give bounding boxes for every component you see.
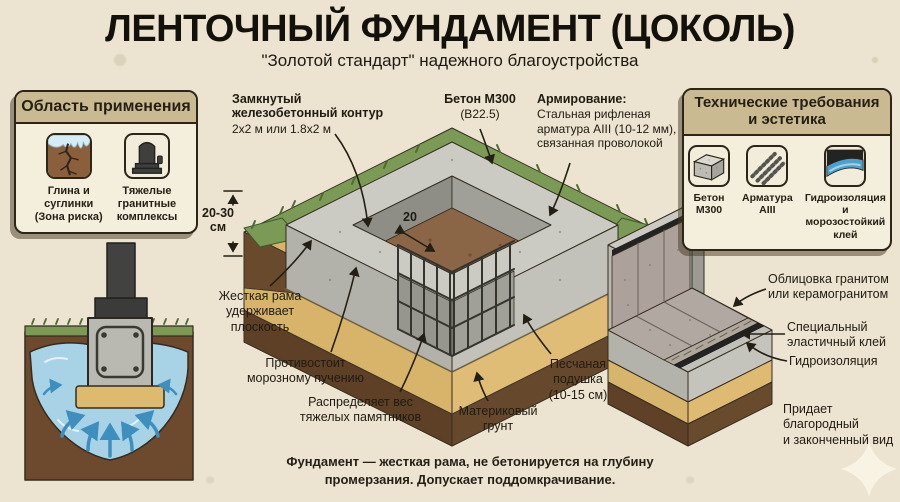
- callout-waterproofing: Гидроизоляция: [789, 354, 899, 369]
- page-title: ЛЕНТОЧНЫЙ ФУНДАМЕНТ (ЦОКОЛЬ): [0, 8, 900, 51]
- panel-item-concrete: Бетон М300: [688, 145, 730, 242]
- callout-reinforcement: Армирование: Стальная рифленая арматура …: [537, 92, 692, 150]
- infographic-strip-foundation: ЛЕНТОЧНЫЙ ФУНДАМЕНТ (ЦОКОЛЬ) "Золотой ст…: [0, 0, 900, 502]
- callout-noble-look: Придает благородный и законченный вид: [783, 402, 900, 448]
- cracked-clay-frost-icon: [46, 133, 92, 179]
- granite-monument-icon: [124, 133, 170, 179]
- rebar-rods-icon: [746, 145, 788, 187]
- panel-item-label: Глина и суглинки (Зона риска): [35, 185, 103, 224]
- concrete-block-icon: [688, 145, 730, 187]
- frost-heave-illustration: [25, 243, 193, 480]
- callout-rigid-frame: Жесткая рама удерживает плоскость: [205, 289, 315, 335]
- application-area-panel: Область применения Глина и суглинки (Зон…: [14, 90, 198, 234]
- panel-item-label: Арматура AIII: [742, 192, 793, 217]
- application-area-panel-body: Глина и суглинки (Зона риска) Тяжелые гр…: [16, 124, 196, 232]
- callout-bedrock: Материковый грунт: [450, 404, 546, 435]
- callout-sand-cushion: Песчаная подушка (10-15 см): [528, 357, 628, 403]
- sparkle-icon: [841, 441, 897, 497]
- callout-frost-resistance: Противостоит морозному пучению: [243, 356, 368, 387]
- technical-requirements-panel-title: Технические требования и эстетика: [684, 90, 890, 136]
- panel-item-granite-monuments: Тяжелые гранитные комплексы: [117, 133, 178, 224]
- callout-contour: Замкнутый железобетонный контур 2х2 м ил…: [232, 92, 392, 136]
- page-subtitle: "Золотой стандарт" надежного благоустрой…: [0, 51, 900, 71]
- callout-weight-distribution: Распределяет вес тяжелых памятников: [298, 395, 423, 426]
- callout-elastic-glue: Специальный эластичный клей: [787, 320, 897, 351]
- panel-item-label: Бетон М300: [693, 192, 724, 217]
- panel-item-label: Гидроизоляция и морозостойкий клей: [805, 192, 886, 242]
- panel-item-rebar: Арматура AIII: [742, 145, 793, 242]
- panel-item-clay-soils: Глина и суглинки (Зона риска): [35, 133, 103, 224]
- panel-item-waterproofing: Гидроизоляция и морозостойкий клей: [805, 145, 886, 242]
- callout-concrete-grade: Бетон М300 (В22.5): [425, 92, 535, 122]
- panel-item-label: Тяжелые гранитные комплексы: [117, 185, 178, 224]
- application-area-panel-title: Область применения: [16, 92, 196, 124]
- technical-requirements-panel-body: Бетон М300 Арматура AI: [684, 136, 890, 250]
- footer-note: Фундамент — жесткая рама, не бетонируетс…: [250, 453, 690, 488]
- waterproofing-layer-icon: [824, 145, 866, 187]
- technical-requirements-panel: Технические требования и эстетика Бетон …: [682, 88, 892, 251]
- callout-cladding: Облицовка гранитом или керамогранитом: [768, 272, 896, 303]
- dimension-height-above-ground: 20-30 см: [196, 207, 240, 235]
- dimension-wall-width: 20: [396, 211, 424, 225]
